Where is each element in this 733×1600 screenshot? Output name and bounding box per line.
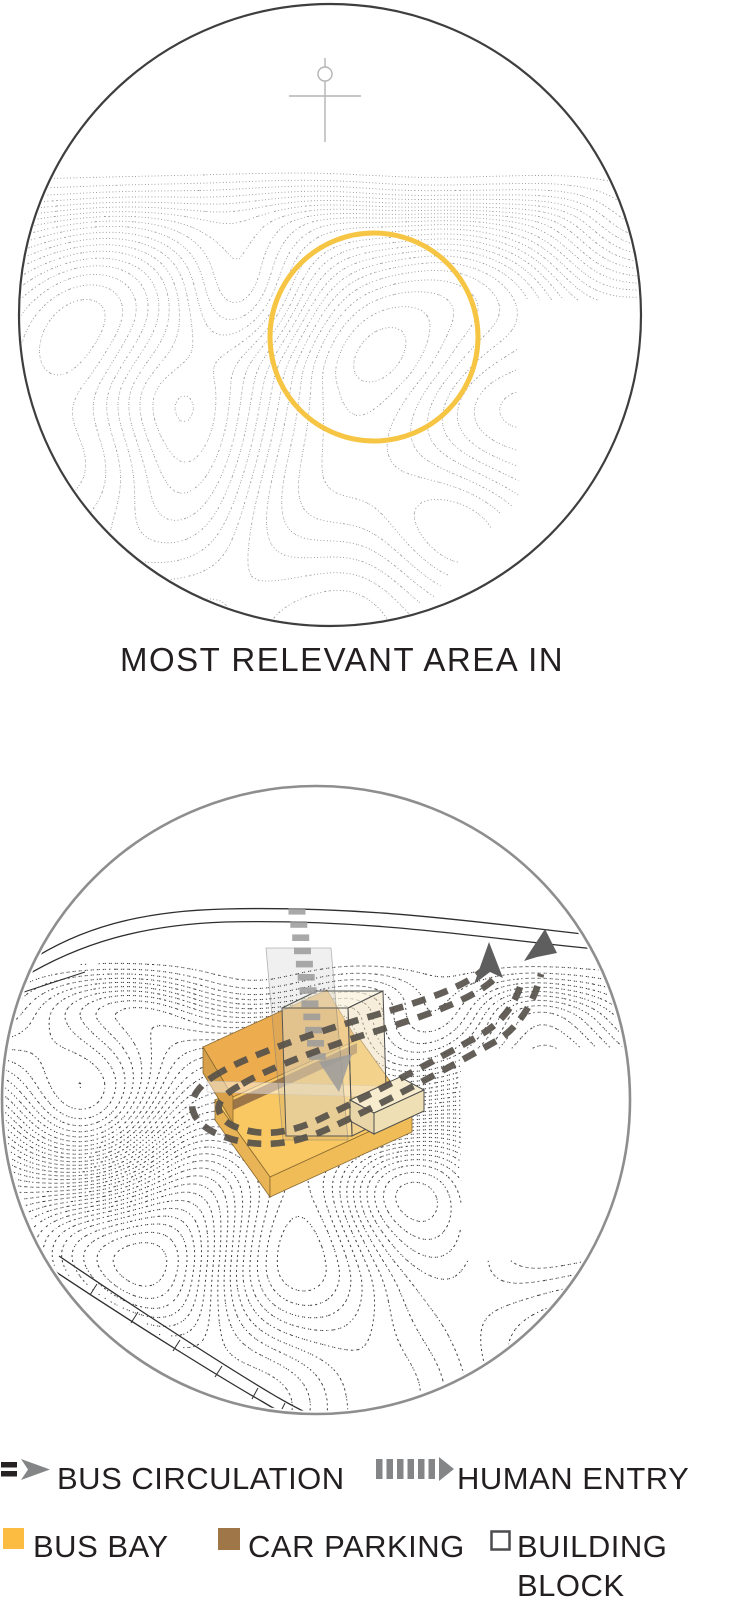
bus-entry-arrowhead-icon xyxy=(524,929,557,961)
diagram-canvas xyxy=(0,0,733,1600)
legend-label-human-entry: HUMAN ENTRY xyxy=(457,1460,689,1499)
legend-label-bus-circulation: BUS CIRCULATION xyxy=(57,1460,345,1499)
bus-circulation-icon xyxy=(1,1459,51,1481)
legend-label-bus-bay: BUS BAY xyxy=(33,1528,169,1567)
context-map xyxy=(18,4,642,628)
site-plan-map xyxy=(2,786,631,1422)
lower-road xyxy=(50,1256,309,1422)
north-marker-icon xyxy=(289,58,361,142)
bus-bay-swatch xyxy=(3,1528,24,1549)
bus-exit-arrowhead-icon xyxy=(474,942,503,984)
site-analysis-page: MOST RELEVANT AREA IN BUS CIRCULATION HU… xyxy=(0,0,733,1600)
human-entry-icon xyxy=(376,1457,454,1481)
car-parking-swatch xyxy=(218,1528,240,1550)
legend-label-car-parking: CAR PARKING xyxy=(248,1528,465,1567)
building-block-swatch xyxy=(490,1530,511,1551)
caption: MOST RELEVANT AREA IN xyxy=(120,641,620,679)
road-tick-marks xyxy=(90,1284,285,1413)
context-map-boundary-circle xyxy=(19,4,641,626)
legend-label-building-block: BUILDING BLOCK xyxy=(517,1528,687,1600)
